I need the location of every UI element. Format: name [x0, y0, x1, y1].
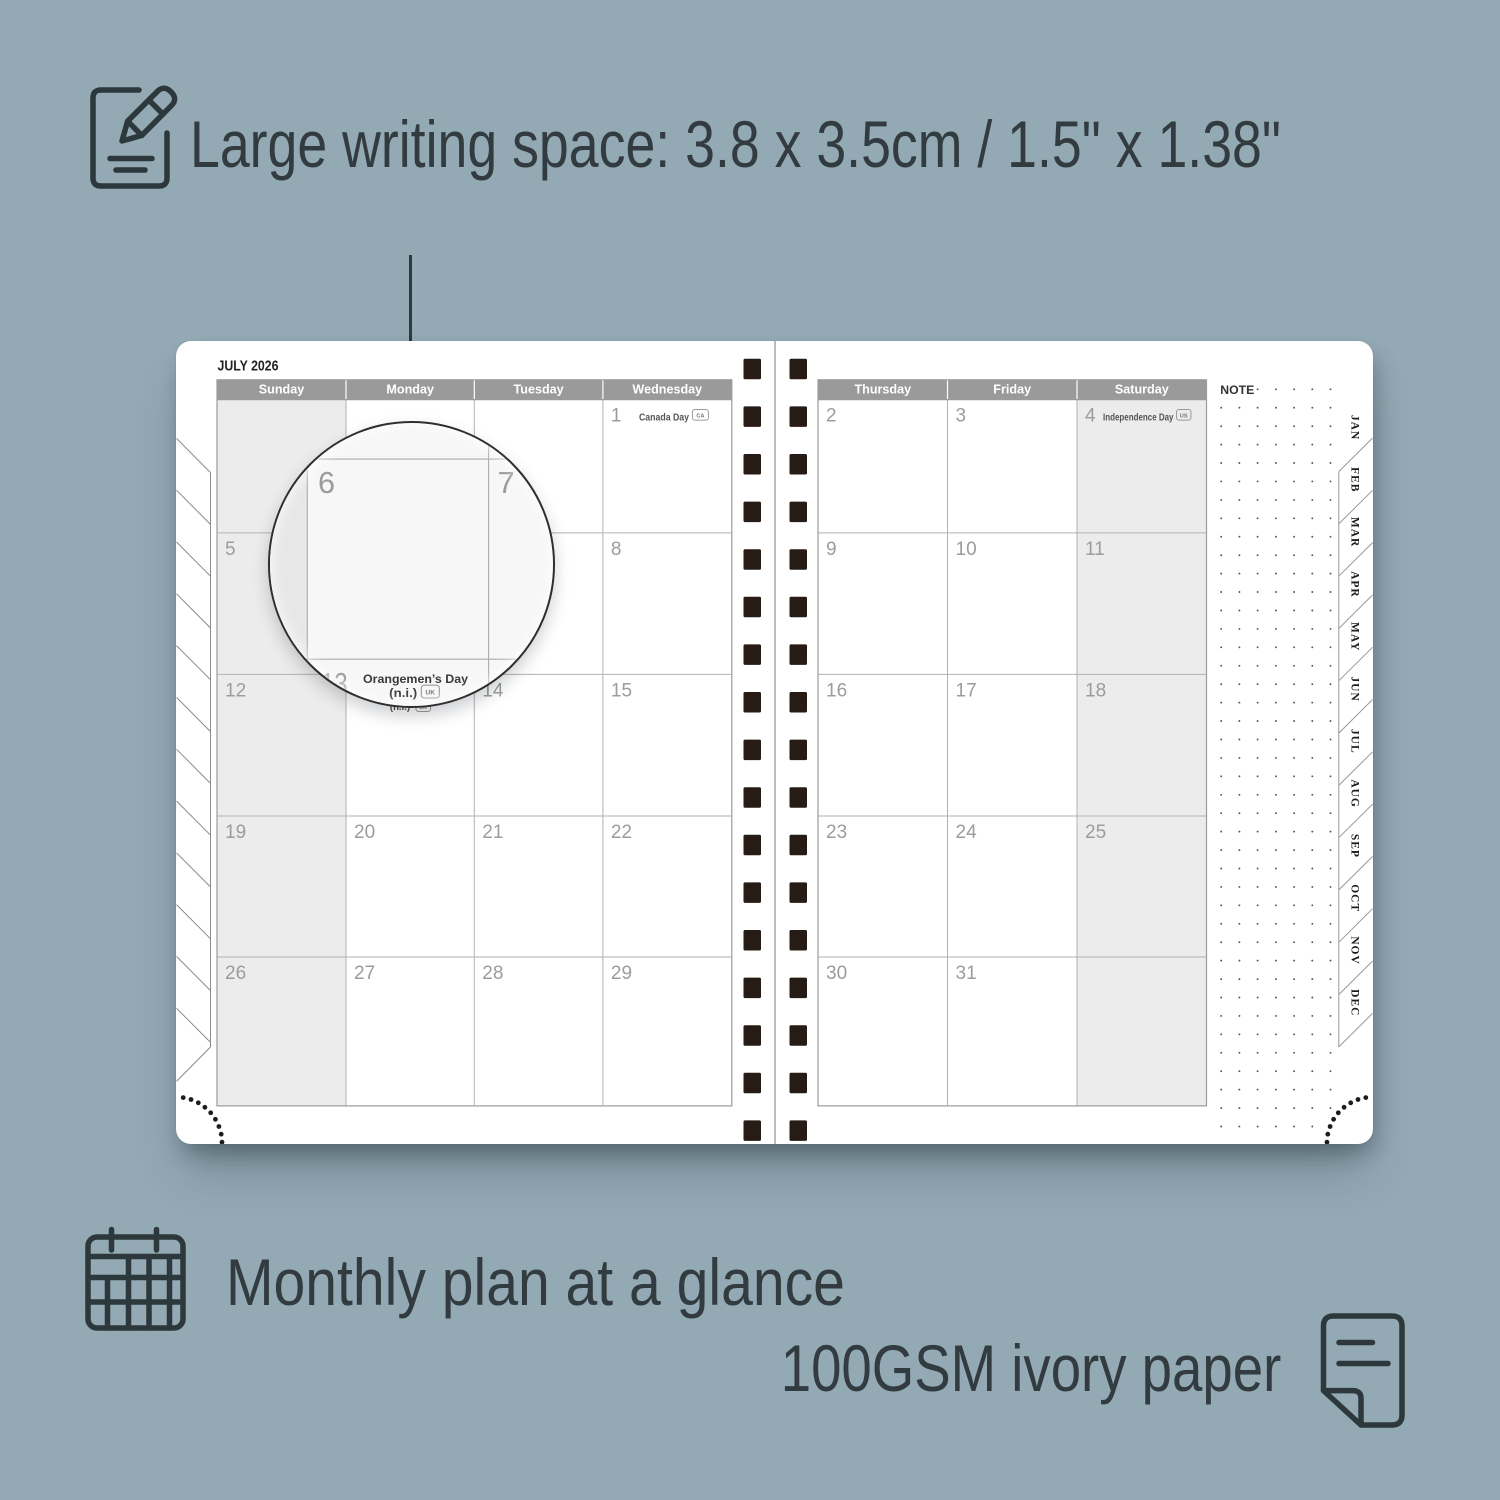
svg-text:US: US	[1180, 413, 1188, 419]
svg-text:16: 16	[826, 680, 847, 701]
svg-text:Wednesday: Wednesday	[632, 382, 702, 396]
svg-text:MAY: MAY	[1349, 622, 1361, 651]
svg-text:OCT: OCT	[1349, 884, 1361, 912]
svg-text:MAR: MAR	[1349, 517, 1361, 547]
svg-text:Monday: Monday	[386, 382, 434, 396]
svg-text:Independence Day: Independence Day	[1103, 412, 1174, 423]
svg-text:JUN: JUN	[1349, 676, 1361, 701]
svg-text:APR: APR	[1349, 571, 1361, 598]
svg-text:18: 18	[1085, 680, 1106, 701]
svg-text:CA: CA	[696, 413, 704, 419]
svg-text:8: 8	[611, 539, 622, 560]
svg-text:9: 9	[826, 539, 837, 560]
svg-text:5: 5	[225, 539, 236, 560]
svg-text:4: 4	[1085, 406, 1096, 427]
svg-text:FEB: FEB	[1349, 467, 1361, 492]
svg-text:21: 21	[482, 822, 503, 843]
svg-text:NOTE: NOTE	[1220, 383, 1254, 397]
svg-text:NOV: NOV	[1349, 936, 1361, 965]
svg-text:19: 19	[225, 822, 246, 843]
svg-text:Tuesday: Tuesday	[514, 382, 564, 396]
svg-text:Thursday: Thursday	[854, 382, 911, 396]
svg-text:30: 30	[826, 963, 847, 984]
svg-text:JUL: JUL	[1349, 729, 1361, 754]
svg-text:JULY 2026: JULY 2026	[218, 359, 279, 375]
svg-text:12: 12	[225, 680, 246, 701]
svg-text:SEP: SEP	[1349, 834, 1361, 858]
svg-text:23: 23	[826, 822, 847, 843]
svg-text:AUG: AUG	[1349, 779, 1361, 808]
svg-text:3: 3	[956, 406, 967, 427]
svg-text:11: 11	[1085, 539, 1105, 560]
svg-text:Sunday: Sunday	[259, 382, 305, 396]
svg-text:Canada Day: Canada Day	[639, 412, 689, 423]
svg-text:31: 31	[956, 963, 977, 984]
svg-text:1: 1	[611, 406, 622, 427]
svg-text:DEC: DEC	[1349, 989, 1361, 1016]
svg-text:15: 15	[611, 680, 632, 701]
svg-text:2: 2	[826, 406, 837, 427]
svg-text:29: 29	[611, 963, 632, 984]
svg-text:17: 17	[956, 680, 977, 701]
svg-text:24: 24	[956, 822, 978, 843]
svg-text:28: 28	[482, 963, 503, 984]
svg-text:22: 22	[611, 822, 632, 843]
svg-text:26: 26	[225, 963, 246, 984]
svg-text:Friday: Friday	[993, 382, 1031, 396]
svg-text:27: 27	[354, 963, 375, 984]
svg-text:25: 25	[1085, 822, 1106, 843]
svg-text:JAN: JAN	[1349, 415, 1361, 440]
svg-text:20: 20	[354, 822, 375, 843]
svg-text:10: 10	[956, 539, 977, 560]
svg-text:Saturday: Saturday	[1115, 382, 1169, 396]
